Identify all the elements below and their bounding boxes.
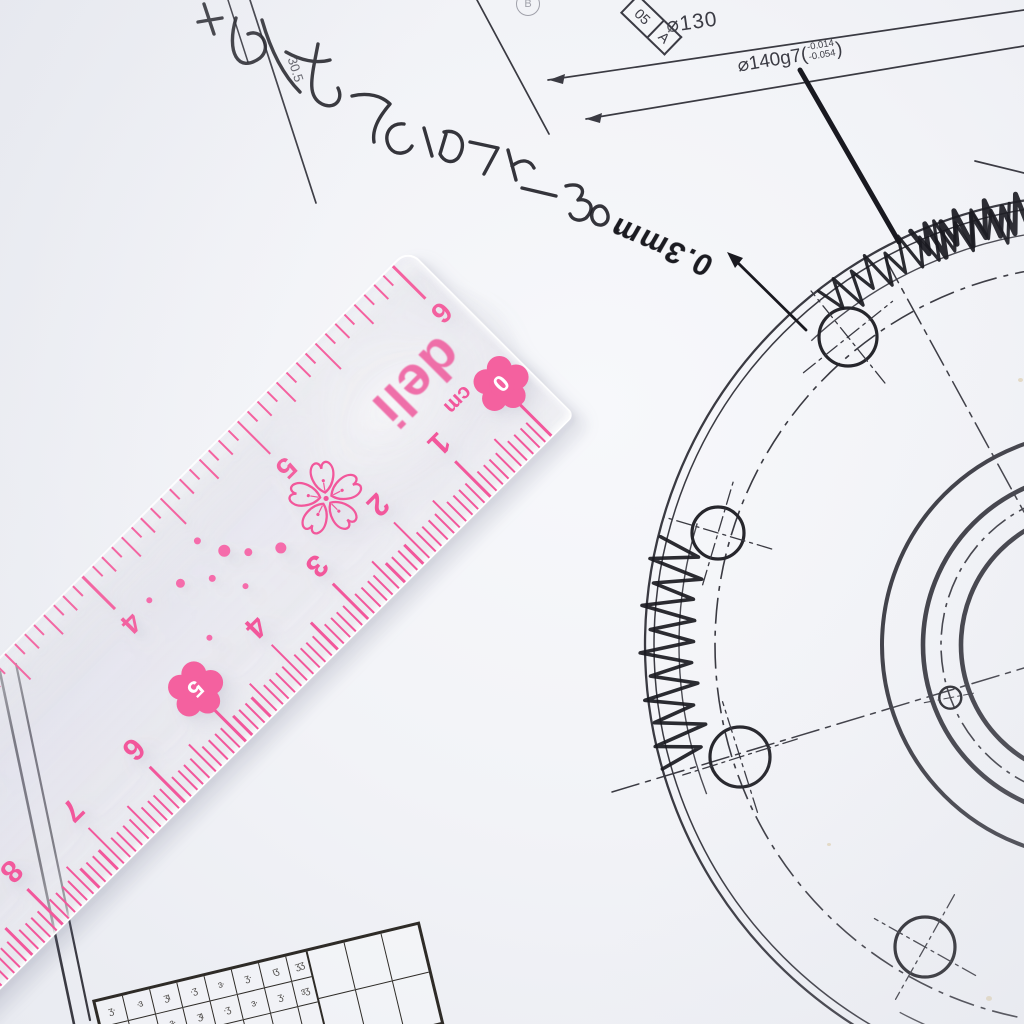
ruler-inch-tick [101,556,117,572]
ruler-inch-tick [0,673,1,689]
gear-outer-rim-inner-circle [654,204,1024,1024]
ruler-inch-tick [198,459,219,480]
bolt-hole-centerline [874,919,975,976]
ruler-inch-tick [131,527,142,538]
cell-scribble: ·ʒ [222,1004,232,1017]
cell-scribble: ɜʒ [299,985,310,998]
pen-arrow-line [731,256,806,330]
cell-scribble: ·ɜ [134,999,143,1011]
ruler-deco-dot [145,596,153,604]
extension-line-steep [228,0,248,62]
ruler-inch-tick [208,449,219,460]
ruler-deco-dot [216,542,233,559]
gear-center-line-vertical [885,258,1024,512]
ruler-inch-tick [228,430,239,441]
pen-leader-line [800,70,899,242]
cell-scribble: ɜ· [216,979,225,991]
bolt-hole-centerline [804,301,893,372]
gear-center-line-horizontal [612,668,1024,792]
ruler-inch-tick [72,585,83,596]
ruler-deco-dot [273,540,289,556]
ruler-inch-tick [383,275,394,286]
handwritten-scrawl [566,185,591,220]
ruler-deco-dot [243,547,254,558]
handwritten-scrawl [508,150,534,180]
ruler-inch-tick [247,411,258,422]
cell-scribble: ʒι [162,992,171,1004]
gear-bolt-circle [715,265,1024,1024]
cell-scribble: ʒ· [107,1005,117,1018]
cell-scribble: ·ʒ [188,985,198,998]
paper-speck [827,843,831,846]
cell-scribble: ɜ· [168,1017,177,1024]
ruler-cm-number: 4 [237,608,275,646]
handwritten-scrawl [198,4,222,34]
ruler-deco-dot [241,582,249,590]
ruler-cm-number: 8 [0,852,30,890]
ruler-deco-dot [205,633,213,641]
handwritten-scrawl [352,94,390,142]
ruler-inch-tick [4,653,31,680]
ruler-inch-tick [150,508,161,519]
handwritten-scrawl [440,131,462,161]
ruler-inch-tick [34,624,45,635]
ruler-inch-tick [82,576,116,610]
bolt-hole-centerline [664,517,771,549]
ruler-inch-tick [0,663,6,674]
cell-scribble: ɜ· [249,998,258,1010]
ruler-inch-tick [189,469,200,480]
handwritten-scrawl [470,142,498,174]
gear-bore-circle [961,511,1024,779]
ruler-deco-dot [192,536,202,546]
ruler-inch-tick [92,566,103,577]
ruler-deco-dot [174,577,187,590]
paper-speck [986,996,992,1001]
cell-scribble: ʒ· [243,972,253,985]
ruler-inch-tick [179,478,195,494]
handwritten-scrawl [387,124,412,153]
ruler-inch-tick [257,401,273,417]
ruler-inch-tick [14,643,25,654]
ruler-inch-tick [169,488,180,499]
ruler-inch-tick [63,595,79,611]
gear-inner-bolt-circle [941,491,1024,799]
ruler-inch-number: 4 [113,605,148,640]
ruler-inch-tick [218,440,234,456]
ruler-inch-tick [111,546,122,557]
cell-scribble: ʒι [195,1011,204,1023]
ruler-inch-tick [266,391,277,402]
ruler-inch-tick [53,605,64,616]
ruler-inch-tick [237,420,271,454]
ruler-deco-dot [207,573,217,583]
extension-line [975,161,1024,173]
gear-hub-circle [882,432,1024,858]
cell-scribble: ʒʒ [293,960,305,973]
ruler-cm-number: 6 [115,730,153,768]
ruler-cm-number: 7 [54,791,92,829]
extension-line-steep [477,0,549,134]
ruler-inch-tick [140,517,156,533]
photo-of-blueprint-with-ruler: ⌀130 ⌀140g7(-0.014-0.054) 05 A B 30.5 0.… [0,0,1024,1024]
ruler-inch-tick [43,614,64,635]
paper-speck [1018,378,1023,382]
ruler-inch-tick [121,537,142,558]
ruler-inch-tick [160,498,187,525]
extension-line-steep [250,0,316,203]
gear-hub-circle [923,473,1024,817]
handwritten-scrawl [424,128,432,156]
ruler-inch-tick [24,634,40,650]
handwritten-scrawl [232,18,265,63]
cell-scribble: ιʒ [271,966,280,978]
cell-scribble: ʒ· [276,991,286,1004]
handwritten-scrawl [522,188,556,196]
ruler-cm-tick [0,949,3,986]
